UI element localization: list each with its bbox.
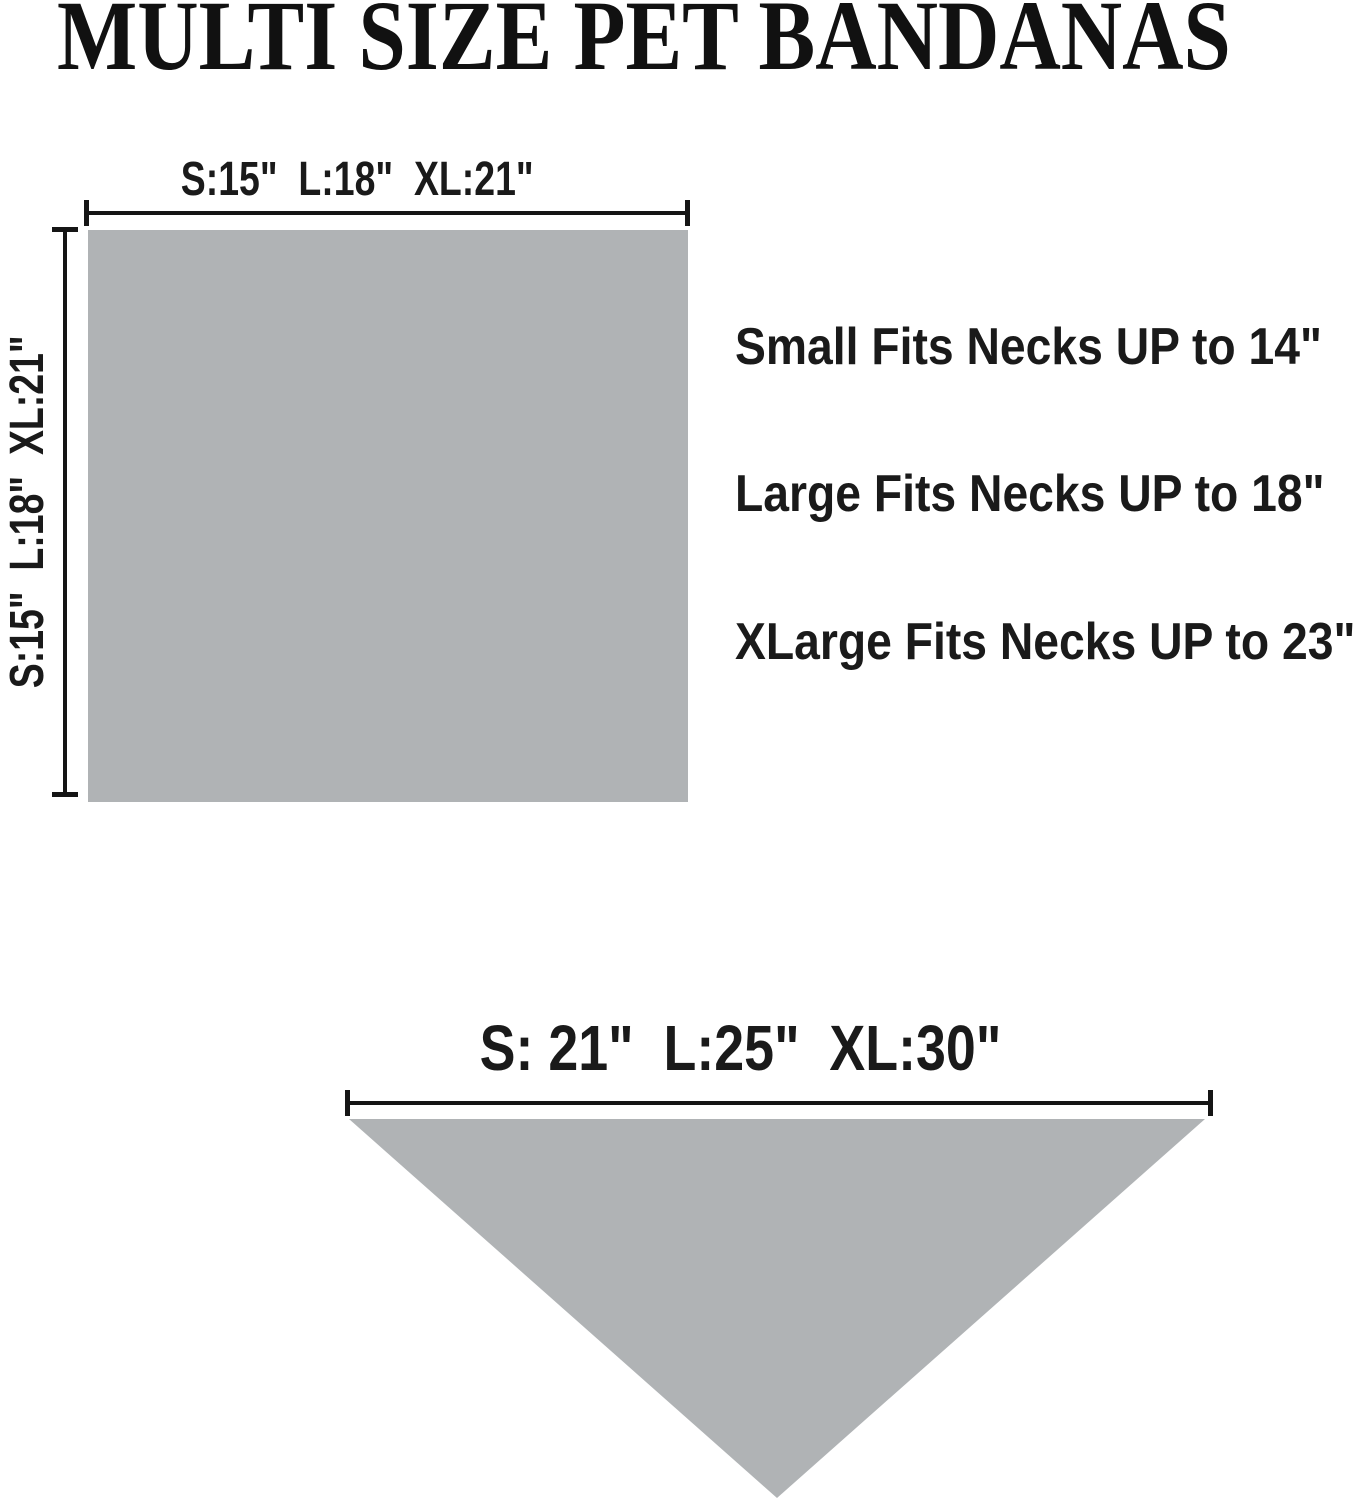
fit-note-large: Large Fits Necks UP to 18" xyxy=(735,468,1357,520)
bandana-folded-triangle-fill xyxy=(349,1119,1205,1498)
bandana-folded-triangle xyxy=(349,1119,1205,1498)
fit-note-xlarge-text: XLarge Fits Necks UP to 23" xyxy=(735,616,1355,668)
fit-note-small-text: Small Fits Necks UP to 14" xyxy=(735,321,1322,373)
page-title: MULTI SIZE PET BANDANAS xyxy=(57,0,1231,86)
bandana-flat-square-fill xyxy=(88,230,688,802)
flat-height-label: S:15" L:18" XL:21" xyxy=(4,228,60,796)
flat-height-label-text: S:15" L:18" XL:21" xyxy=(4,336,52,689)
fit-note-xlarge: XLarge Fits Necks UP to 23" xyxy=(735,616,1357,668)
flat-width-dimension-line xyxy=(85,211,689,215)
fit-note-large-text: Large Fits Necks UP to 18" xyxy=(735,468,1325,520)
fit-note-small: Small Fits Necks UP to 14" xyxy=(735,321,1357,373)
folded-width-dimension-line xyxy=(346,1101,1212,1105)
pet-bandana-size-chart: MULTI SIZE PET BANDANAS S:15" L:18" XL:2… xyxy=(0,0,1357,1500)
bandana-flat-square xyxy=(88,230,688,802)
folded-width-label-text: S: 21" L:25" XL:30" xyxy=(479,1016,1001,1080)
flat-width-label: S:15" L:18" XL:21" xyxy=(55,156,659,204)
folded-width-label: S: 21" L:25" XL:30" xyxy=(307,1016,1173,1080)
flat-width-label-text: S:15" L:18" XL:21" xyxy=(181,156,534,204)
flat-height-dimension-line xyxy=(63,228,67,796)
